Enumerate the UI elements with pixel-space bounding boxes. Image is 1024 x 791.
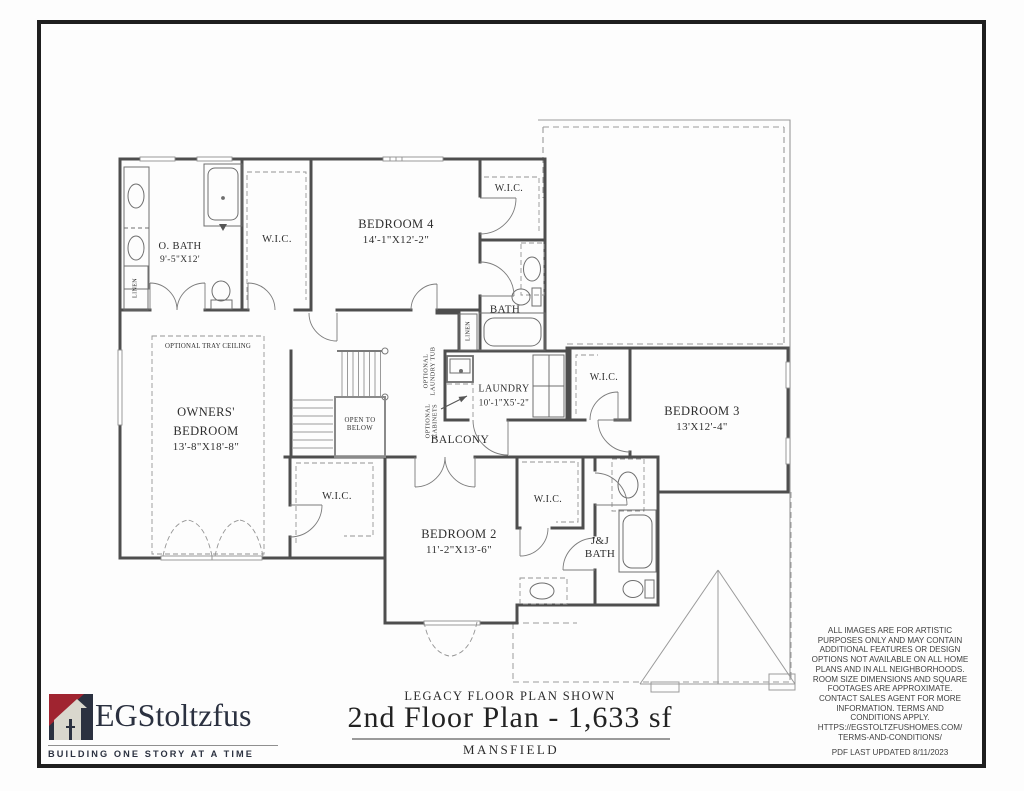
label-linen-owners: LINEN (132, 278, 139, 298)
label-optional-cabinets: OPTIONAL CABINETS (425, 404, 440, 439)
room-label-bath: BATH (490, 304, 520, 317)
label-wic-owners-2: W.I.C. (322, 491, 352, 503)
room-label-owners-bath: O. BATH 9'-5"X12' (158, 217, 201, 285)
logo-tagline: BUILDING ONE STORY AT A TIME (48, 749, 280, 759)
label-wic-owners: W.I.C. (262, 234, 292, 246)
title-divider (352, 738, 670, 740)
logo-brand-text: EGStoltzfus (95, 697, 251, 734)
disclaimer-updated: PDF LAST UPDATED 8/11/2023 (810, 748, 970, 758)
plan-title: 2nd Floor Plan - 1,633 sf (348, 701, 673, 735)
egstoltzfus-house-icon (48, 693, 94, 741)
stairs (293, 348, 388, 457)
room-label-laundry: LAUNDRY 10'-1"X5'-2" (478, 359, 529, 426)
label-wic-bedroom-3: W.I.C. (590, 372, 618, 384)
label-wic-bedroom-4: W.I.C. (495, 183, 523, 195)
label-linen-hall: LINEN (465, 321, 472, 341)
room-label-bedroom-3: BEDROOM 3 13'X12'-4" (664, 383, 739, 453)
room-label-bedroom-2: BEDROOM 2 11'-2"X13'-6" (421, 506, 496, 576)
model-name: MANSFIELD (463, 742, 559, 758)
label-optional-laundry-tub: OPTIONAL LAUNDRY TUB (423, 347, 438, 396)
room-label-jj-bath: J&J BATH (585, 535, 615, 561)
room-label-owners-bedroom: OWNERS' BEDROOM 13'-8"X18'-8" (173, 384, 239, 472)
label-open-to-below: OPEN TO BELOW (344, 417, 375, 433)
disclaimer-block: ALL IMAGES ARE FOR ARTISTIC PURPOSES ONL… (810, 626, 970, 758)
floor-plan-page: OWNERS' BEDROOM 13'-8"X18'-8" OPTIONAL T… (0, 0, 1024, 791)
label-wic-bedroom-2: W.I.C. (534, 494, 562, 506)
label-optional-tray-ceiling: OPTIONAL TRAY CEILING (165, 343, 251, 351)
disclaimer-text: ALL IMAGES ARE FOR ARTISTIC PURPOSES ONL… (812, 626, 969, 742)
logo-divider (48, 745, 278, 746)
room-label-balcony: BALCONY (431, 434, 489, 448)
room-label-bedroom-4: BEDROOM 4 14'-1"X12'-2" (358, 196, 433, 266)
